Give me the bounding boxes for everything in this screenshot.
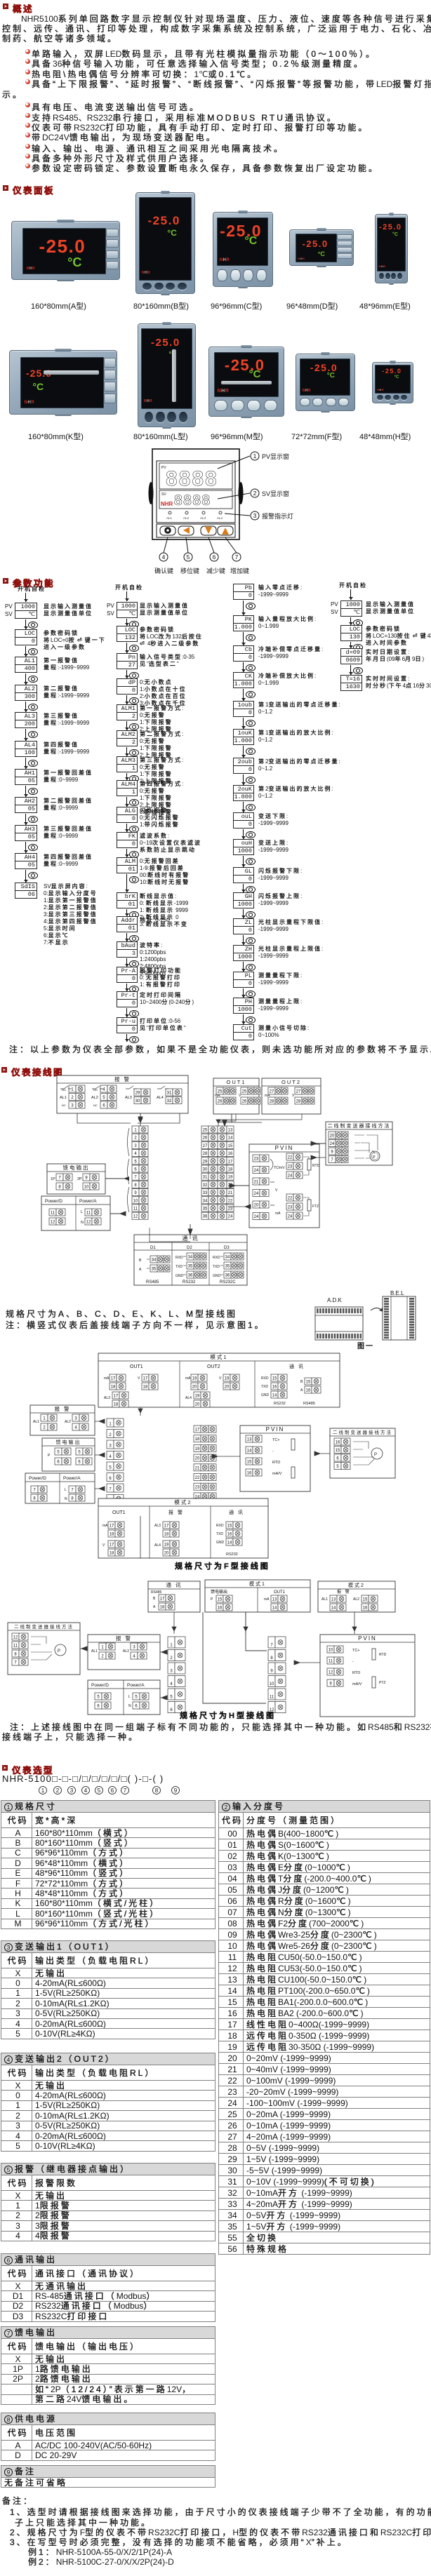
svg-text:GND: GND bbox=[261, 1393, 270, 1397]
svg-text:20: 20 bbox=[330, 1134, 335, 1139]
svg-text:15: 15 bbox=[227, 1524, 232, 1529]
svg-text:Power/D: Power/D bbox=[29, 1476, 46, 1481]
svg-text:26: 26 bbox=[203, 1136, 208, 1141]
svg-text:AL1: AL1 bbox=[60, 1096, 67, 1100]
svg-text:24: 24 bbox=[330, 1142, 335, 1146]
svg-text:18: 18 bbox=[164, 1533, 169, 1537]
svg-text:P: P bbox=[373, 1155, 376, 1160]
svg-text:10: 10 bbox=[329, 1649, 333, 1653]
svg-text:PV显示窗: PV显示窗 bbox=[262, 452, 289, 460]
svg-text:20: 20 bbox=[254, 1204, 259, 1208]
svg-text:28: 28 bbox=[270, 1100, 274, 1104]
svg-text:NHR: NHR bbox=[161, 501, 173, 507]
svg-text:23: 23 bbox=[254, 1158, 259, 1162]
svg-text:19: 19 bbox=[195, 1447, 200, 1451]
svg-text:11: 11 bbox=[133, 1207, 138, 1212]
svg-text:RS485: RS485 bbox=[151, 1590, 162, 1595]
svg-text:13: 13 bbox=[247, 1438, 252, 1442]
svg-text:2: 2 bbox=[56, 1787, 60, 1794]
svg-text:36: 36 bbox=[225, 1274, 230, 1278]
svg-text:GND: GND bbox=[175, 1274, 184, 1278]
svg-text:19: 19 bbox=[164, 1543, 169, 1548]
svg-text:RTD: RTD bbox=[312, 1164, 320, 1168]
svg-text:16: 16 bbox=[247, 1472, 252, 1476]
svg-text:15: 15 bbox=[306, 1381, 311, 1385]
svg-text:D2: D2 bbox=[187, 1246, 192, 1250]
svg-text:二线制变送器接线方法: 二线制变送器接线方法 bbox=[333, 1429, 392, 1435]
svg-text:D3: D3 bbox=[224, 1246, 230, 1250]
svg-text:16: 16 bbox=[218, 1606, 223, 1611]
svg-text:23: 23 bbox=[288, 1206, 293, 1210]
svg-text:12: 12 bbox=[13, 1636, 18, 1640]
svg-text:PVIN: PVIN bbox=[266, 1426, 285, 1433]
svg-text:15: 15 bbox=[228, 1144, 233, 1148]
svg-text:14: 14 bbox=[228, 1136, 233, 1141]
svg-text:12: 12 bbox=[86, 1221, 91, 1225]
svg-text:RTD: RTD bbox=[352, 1671, 360, 1675]
svg-text:NO: NO bbox=[93, 1088, 98, 1092]
svg-text:-: - bbox=[272, 1449, 274, 1454]
svg-text:OUT1: OUT1 bbox=[274, 1590, 286, 1595]
svg-text:17: 17 bbox=[110, 1543, 114, 1548]
svg-text:AL4: AL4 bbox=[185, 1396, 192, 1400]
svg-text:RS485: RS485 bbox=[303, 1402, 315, 1406]
svg-text:15: 15 bbox=[272, 1377, 277, 1381]
svg-text:19: 19 bbox=[228, 1176, 233, 1180]
svg-text:17: 17 bbox=[114, 1395, 119, 1399]
svg-text:SV显示窗: SV显示窗 bbox=[262, 490, 289, 497]
svg-text:8888: 8888 bbox=[174, 492, 211, 509]
svg-text:mA: mA bbox=[275, 1212, 281, 1216]
svg-text:24: 24 bbox=[254, 1169, 259, 1173]
svg-text:27: 27 bbox=[270, 1090, 274, 1094]
svg-text:RS232: RS232 bbox=[274, 1402, 286, 1406]
svg-text:mA: mA bbox=[185, 1376, 191, 1381]
svg-text:通 讯: 通 讯 bbox=[289, 1363, 305, 1369]
svg-text:3: 3 bbox=[70, 1787, 74, 1794]
svg-text:17: 17 bbox=[111, 1377, 116, 1381]
svg-text:OUT1: OUT1 bbox=[226, 1079, 246, 1085]
svg-text:34: 34 bbox=[225, 1256, 230, 1260]
svg-text:A.D.K: A.D.K bbox=[327, 1297, 343, 1303]
svg-text:报 警: 报 警 bbox=[114, 1075, 131, 1082]
svg-text:报警指示灯: 报警指示灯 bbox=[262, 512, 293, 520]
svg-text:模式1: 模式1 bbox=[249, 1581, 266, 1587]
svg-text:N: N bbox=[65, 1497, 67, 1501]
svg-text:mA: mA bbox=[102, 1524, 108, 1528]
svg-text:14: 14 bbox=[331, 1606, 336, 1611]
svg-text:B.E.L: B.E.L bbox=[390, 1290, 404, 1296]
svg-text:TXD: TXD bbox=[261, 1385, 268, 1389]
svg-text:mA: mA bbox=[104, 1376, 110, 1381]
svg-text:18: 18 bbox=[110, 1552, 114, 1556]
svg-text:24: 24 bbox=[254, 1192, 259, 1196]
svg-text:报 警: 报 警 bbox=[337, 1589, 351, 1595]
svg-text:9: 9 bbox=[174, 1787, 178, 1794]
svg-text:22: 22 bbox=[288, 1156, 293, 1160]
svg-text:mA/V: mA/V bbox=[352, 1682, 362, 1686]
svg-text:2: 2 bbox=[253, 490, 257, 497]
svg-text:19: 19 bbox=[192, 1377, 197, 1381]
svg-text:4: 4 bbox=[162, 554, 166, 561]
svg-text:20: 20 bbox=[225, 1386, 230, 1390]
svg-text:23: 23 bbox=[228, 1207, 233, 1212]
svg-text:34: 34 bbox=[203, 1199, 208, 1203]
svg-text:馈电输出: 馈电输出 bbox=[56, 1439, 81, 1445]
svg-text:AL3: AL3 bbox=[154, 1524, 161, 1528]
svg-text:29: 29 bbox=[135, 1092, 140, 1096]
svg-text:29: 29 bbox=[203, 1160, 208, 1164]
svg-text:馈电输出: 馈电输出 bbox=[211, 1589, 227, 1595]
svg-text:21: 21 bbox=[254, 1181, 259, 1185]
svg-text:OUT1: OUT1 bbox=[112, 1510, 126, 1515]
svg-text:13: 13 bbox=[331, 1598, 336, 1602]
svg-text:10: 10 bbox=[270, 1682, 274, 1686]
svg-text:6: 6 bbox=[111, 1787, 114, 1794]
svg-text:RXD: RXD bbox=[261, 1376, 269, 1381]
svg-text:AL3: AL3 bbox=[125, 1096, 132, 1100]
svg-text:TC+: TC+ bbox=[272, 1438, 280, 1442]
svg-text:AL2: AL2 bbox=[123, 1649, 129, 1653]
svg-text:24: 24 bbox=[288, 1174, 293, 1179]
svg-text:35: 35 bbox=[225, 1265, 230, 1269]
svg-text:16: 16 bbox=[306, 1389, 311, 1393]
svg-text:报 警: 报 警 bbox=[116, 1635, 132, 1642]
svg-text:18: 18 bbox=[228, 1168, 233, 1172]
svg-text:17: 17 bbox=[110, 1524, 114, 1529]
svg-text:GND: GND bbox=[213, 1274, 221, 1278]
svg-text:NO: NO bbox=[62, 1088, 66, 1092]
svg-text:20: 20 bbox=[195, 1457, 200, 1461]
svg-text:27: 27 bbox=[203, 1144, 208, 1148]
svg-text:14: 14 bbox=[272, 1394, 277, 1398]
svg-text:20: 20 bbox=[164, 1552, 169, 1556]
svg-text:增加键: 增加键 bbox=[230, 567, 249, 575]
svg-text:12: 12 bbox=[133, 1215, 138, 1219]
svg-text:AL2: AL2 bbox=[91, 1096, 98, 1100]
svg-text:二线制变送器接线方法: 二线制变送器接线方法 bbox=[14, 1623, 74, 1630]
svg-text:26: 26 bbox=[242, 1100, 247, 1104]
svg-text:21: 21 bbox=[228, 1191, 233, 1195]
svg-text:11: 11 bbox=[86, 1212, 91, 1216]
svg-text:RXD: RXD bbox=[175, 1256, 183, 1260]
svg-text:35: 35 bbox=[203, 1207, 208, 1212]
svg-text:24: 24 bbox=[254, 1215, 259, 1219]
svg-text:35: 35 bbox=[152, 1268, 157, 1272]
svg-text:AL4: AL4 bbox=[154, 1543, 161, 1548]
svg-text:移位键: 移位键 bbox=[180, 567, 199, 575]
svg-text:P: P bbox=[58, 1649, 60, 1653]
svg-text:NC: NC bbox=[62, 1103, 66, 1107]
svg-text:22: 22 bbox=[195, 1476, 200, 1480]
svg-text:mA: mA bbox=[264, 1597, 270, 1602]
svg-text:14: 14 bbox=[227, 1541, 232, 1545]
svg-text:35: 35 bbox=[188, 1265, 193, 1269]
svg-text:22: 22 bbox=[228, 1199, 233, 1203]
svg-text:模式2: 模式2 bbox=[174, 1498, 192, 1505]
svg-text:17: 17 bbox=[160, 1597, 165, 1602]
svg-text:1: 1 bbox=[253, 452, 257, 459]
svg-text:23: 23 bbox=[288, 1165, 293, 1169]
svg-text:AL2: AL2 bbox=[183, 516, 190, 520]
svg-text:8888: 8888 bbox=[166, 467, 218, 490]
svg-text:16: 16 bbox=[336, 1441, 340, 1445]
svg-text:mA/V: mA/V bbox=[272, 1472, 282, 1476]
svg-text:25: 25 bbox=[242, 1090, 247, 1094]
svg-text:16: 16 bbox=[272, 1386, 277, 1390]
svg-text:模式1: 模式1 bbox=[210, 1353, 227, 1360]
svg-text:31: 31 bbox=[167, 1092, 172, 1096]
svg-text:21: 21 bbox=[195, 1466, 200, 1470]
svg-text:报 警: 报 警 bbox=[54, 1405, 70, 1412]
svg-text:7: 7 bbox=[124, 1787, 127, 1794]
svg-text:Power/D: Power/D bbox=[91, 1683, 109, 1688]
svg-text:17: 17 bbox=[143, 1377, 148, 1381]
svg-text:Power/A: Power/A bbox=[79, 1199, 97, 1204]
svg-text:18: 18 bbox=[160, 1606, 165, 1610]
svg-text:图一: 图一 bbox=[357, 1342, 374, 1350]
svg-text:6: 6 bbox=[213, 554, 216, 561]
svg-text:AL1: AL1 bbox=[33, 1420, 39, 1424]
svg-text:10: 10 bbox=[84, 1186, 89, 1190]
svg-text:13: 13 bbox=[228, 1129, 233, 1133]
svg-text:16: 16 bbox=[228, 1152, 233, 1156]
svg-text:33: 33 bbox=[203, 1191, 208, 1195]
svg-text:RXD: RXD bbox=[213, 1256, 220, 1260]
svg-text:Power/D: Power/D bbox=[45, 1199, 62, 1204]
svg-text:27: 27 bbox=[296, 1090, 301, 1094]
svg-text:10: 10 bbox=[133, 1199, 138, 1203]
svg-text:-: - bbox=[352, 1660, 354, 1664]
svg-text:5: 5 bbox=[187, 554, 190, 561]
svg-text:AL1: AL1 bbox=[321, 1597, 328, 1602]
svg-text:12: 12 bbox=[51, 1221, 55, 1225]
svg-text:RXD: RXD bbox=[216, 1524, 224, 1528]
svg-text:34: 34 bbox=[188, 1256, 193, 1260]
svg-text:AL2: AL2 bbox=[353, 1597, 359, 1602]
svg-text:18: 18 bbox=[143, 1386, 148, 1390]
svg-text:15: 15 bbox=[336, 1449, 340, 1453]
svg-text:Power/A: Power/A bbox=[63, 1476, 81, 1481]
svg-text:PVIN: PVIN bbox=[358, 1635, 377, 1642]
svg-text:TC/mV: TC/mV bbox=[274, 1166, 285, 1170]
svg-text:NC: NC bbox=[93, 1103, 98, 1107]
svg-text:PTZ: PTZ bbox=[379, 1681, 385, 1685]
svg-text:报 警: 报 警 bbox=[168, 1509, 184, 1515]
svg-text:RS232: RS232 bbox=[226, 1552, 238, 1557]
svg-text:AL3: AL3 bbox=[104, 1396, 110, 1400]
svg-text:16: 16 bbox=[227, 1533, 232, 1537]
svg-text:15: 15 bbox=[363, 1598, 368, 1602]
svg-text:确认键: 确认键 bbox=[154, 567, 173, 575]
svg-text:L: L bbox=[81, 1210, 83, 1214]
svg-text:18: 18 bbox=[111, 1386, 116, 1390]
svg-text:通 讯: 通 讯 bbox=[229, 1509, 244, 1515]
svg-text:18: 18 bbox=[195, 1437, 200, 1442]
svg-text:OUT2: OUT2 bbox=[207, 1364, 220, 1369]
svg-text:L: L bbox=[128, 1695, 131, 1699]
svg-text:12: 12 bbox=[329, 1671, 333, 1675]
svg-text:1P: 1P bbox=[51, 1177, 55, 1181]
svg-text:通 讯: 通 讯 bbox=[182, 1235, 199, 1242]
svg-text:25: 25 bbox=[203, 1129, 208, 1133]
svg-text:OUT2: OUT2 bbox=[281, 1079, 301, 1085]
svg-text:15: 15 bbox=[218, 1598, 223, 1602]
svg-text:17: 17 bbox=[195, 1428, 200, 1433]
svg-text:AL4: AL4 bbox=[157, 1096, 164, 1100]
svg-text:3: 3 bbox=[253, 512, 257, 519]
svg-text:25: 25 bbox=[218, 1090, 223, 1094]
svg-text:5: 5 bbox=[98, 1787, 101, 1794]
svg-text:18: 18 bbox=[110, 1533, 114, 1537]
svg-text:2P: 2P bbox=[77, 1177, 82, 1181]
svg-text:AL2: AL2 bbox=[65, 1420, 71, 1424]
svg-text:P: P bbox=[374, 1453, 377, 1457]
svg-text:RS485: RS485 bbox=[146, 1280, 159, 1284]
svg-text:28: 28 bbox=[203, 1152, 208, 1156]
svg-text:11: 11 bbox=[270, 1696, 274, 1700]
svg-text:17: 17 bbox=[164, 1524, 169, 1529]
svg-text:24: 24 bbox=[288, 1215, 293, 1219]
svg-text:11: 11 bbox=[329, 1660, 333, 1664]
svg-text:SV: SV bbox=[161, 492, 166, 497]
svg-text:TC+: TC+ bbox=[352, 1649, 360, 1653]
svg-text:L: L bbox=[65, 1488, 67, 1492]
svg-text:19: 19 bbox=[225, 1377, 230, 1381]
svg-text:14: 14 bbox=[272, 1606, 277, 1611]
svg-text:TXD: TXD bbox=[213, 1265, 220, 1269]
svg-text:D1: D1 bbox=[150, 1246, 156, 1250]
svg-text:FTZ: FTZ bbox=[312, 1205, 319, 1209]
svg-text:17: 17 bbox=[228, 1160, 233, 1164]
svg-text:13: 13 bbox=[272, 1598, 277, 1602]
svg-text:PVIN: PVIN bbox=[275, 1145, 294, 1151]
svg-text:AL1: AL1 bbox=[91, 1649, 98, 1653]
svg-text:30: 30 bbox=[203, 1168, 208, 1172]
svg-text:31: 31 bbox=[203, 1176, 208, 1180]
svg-text:16: 16 bbox=[363, 1606, 368, 1611]
svg-text:AL1: AL1 bbox=[166, 516, 173, 520]
svg-text:19: 19 bbox=[195, 1395, 200, 1399]
svg-text:23: 23 bbox=[195, 1486, 200, 1490]
svg-text:32: 32 bbox=[167, 1099, 172, 1103]
svg-text:二线制变送器接线方法: 二线制变送器接线方法 bbox=[328, 1122, 391, 1129]
svg-text:36: 36 bbox=[203, 1215, 208, 1219]
svg-text:RS232C: RS232C bbox=[220, 1280, 236, 1284]
svg-text:RTD: RTD bbox=[379, 1653, 387, 1657]
svg-text:AL3: AL3 bbox=[200, 516, 206, 520]
svg-text:RTD: RTD bbox=[272, 1461, 280, 1465]
svg-text:22: 22 bbox=[288, 1197, 293, 1201]
svg-text:15: 15 bbox=[247, 1461, 252, 1465]
svg-text:30: 30 bbox=[135, 1099, 140, 1103]
svg-text:GND: GND bbox=[216, 1541, 225, 1545]
svg-text:N: N bbox=[128, 1704, 131, 1708]
svg-text:34: 34 bbox=[152, 1259, 157, 1263]
svg-text:11: 11 bbox=[13, 1644, 18, 1649]
svg-text:N: N bbox=[81, 1221, 84, 1225]
svg-text:7: 7 bbox=[235, 554, 239, 561]
svg-text:20: 20 bbox=[195, 1403, 200, 1407]
svg-text:28: 28 bbox=[296, 1100, 301, 1104]
svg-text:RS232: RS232 bbox=[183, 1280, 196, 1284]
svg-text:14: 14 bbox=[247, 1449, 252, 1454]
svg-text:AL4: AL4 bbox=[217, 516, 223, 520]
svg-text:20: 20 bbox=[192, 1386, 197, 1390]
svg-text:TXD: TXD bbox=[216, 1532, 223, 1536]
svg-text:36: 36 bbox=[188, 1274, 193, 1278]
svg-text:TXD: TXD bbox=[175, 1265, 183, 1269]
svg-text:18: 18 bbox=[114, 1403, 119, 1407]
svg-text:模式2: 模式2 bbox=[348, 1582, 365, 1588]
svg-text:26: 26 bbox=[218, 1100, 223, 1104]
svg-text:馈电输出: 馈电输出 bbox=[63, 1164, 90, 1171]
svg-text:通 讯: 通 讯 bbox=[166, 1581, 182, 1588]
svg-text:32: 32 bbox=[203, 1183, 208, 1188]
svg-text:OUT1: OUT1 bbox=[130, 1364, 143, 1369]
svg-text:1: 1 bbox=[41, 1787, 45, 1794]
svg-text:Power/A: Power/A bbox=[127, 1683, 145, 1688]
svg-text:11: 11 bbox=[51, 1212, 55, 1216]
svg-text:8: 8 bbox=[155, 1787, 159, 1794]
svg-text:4: 4 bbox=[84, 1787, 88, 1794]
svg-text:24: 24 bbox=[228, 1215, 233, 1219]
svg-text:减少键: 减少键 bbox=[206, 567, 225, 575]
